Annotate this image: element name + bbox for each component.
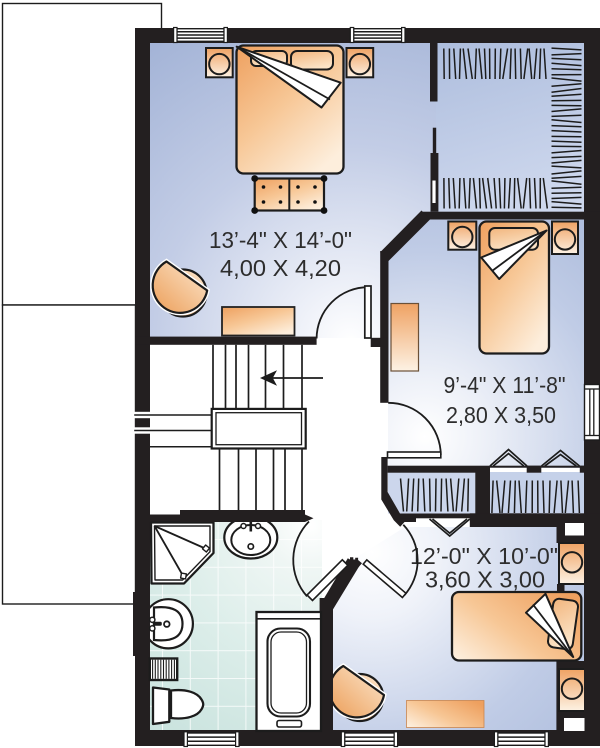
svg-text:12’-0" X 10’-0": 12’-0" X 10’-0"	[410, 543, 558, 569]
svg-text:2,80 X 3,50: 2,80 X 3,50	[446, 402, 556, 428]
svg-text:9’-4" X 11’-8": 9’-4" X 11’-8"	[444, 372, 566, 398]
svg-text:4,00 X 4,20: 4,00 X 4,20	[220, 255, 341, 281]
svg-text:13’-4" X 14’-0": 13’-4" X 14’-0"	[209, 227, 352, 253]
svg-text:3,60 X 3,00: 3,60 X 3,00	[425, 567, 545, 593]
